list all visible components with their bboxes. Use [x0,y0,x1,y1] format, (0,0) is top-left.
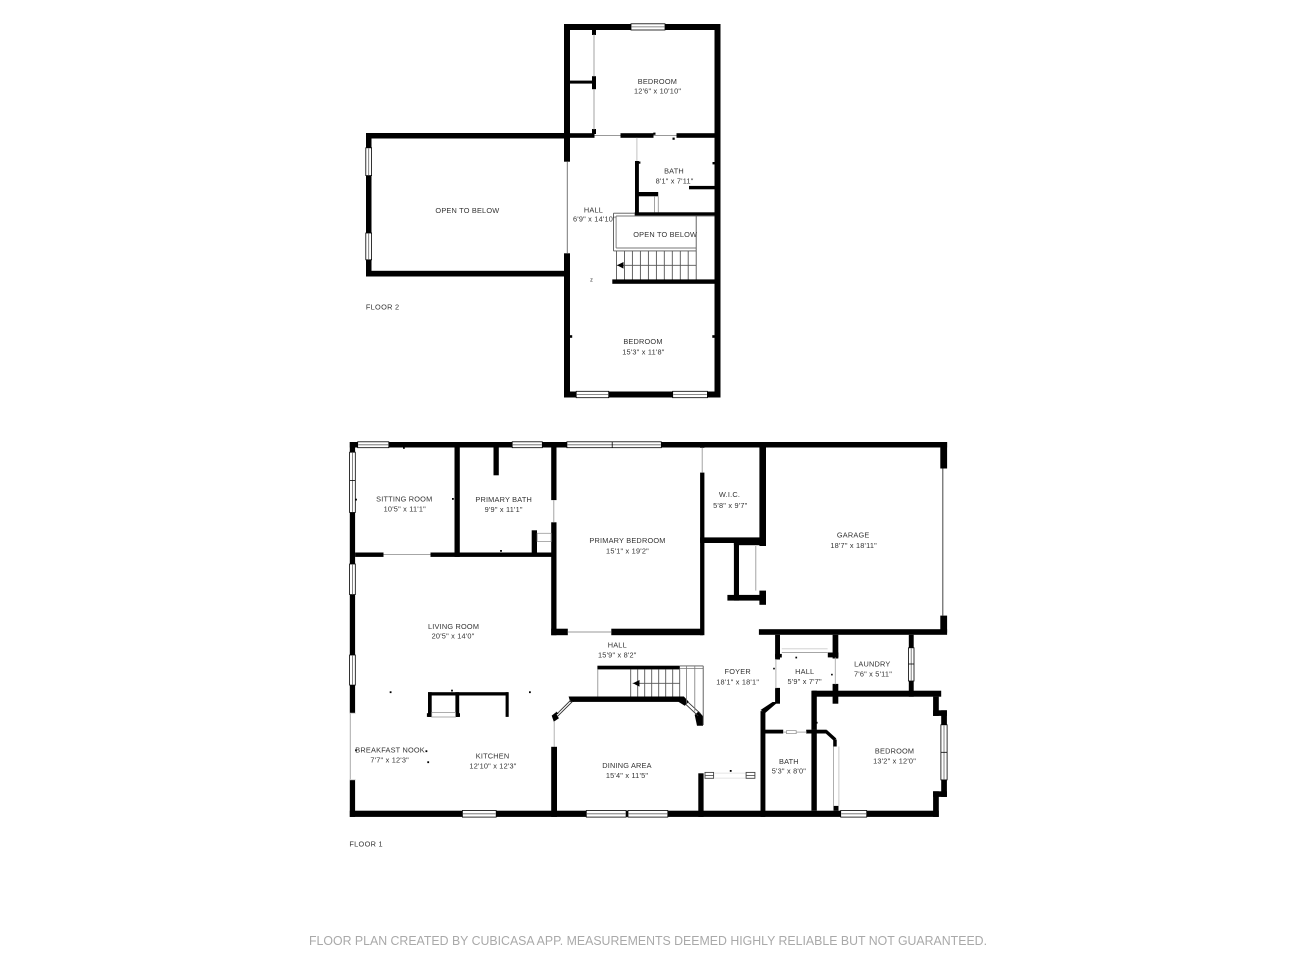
svg-text:PRIMARY BATH: PRIMARY BATH [475,495,532,504]
svg-text:BATH: BATH [779,757,799,766]
svg-text:FOYER: FOYER [725,667,751,676]
svg-text:20'5" x 14'0": 20'5" x 14'0" [432,632,475,641]
svg-text:6'9" x 14'10": 6'9" x 14'10" [573,215,616,224]
svg-text:5'3" x 8'0": 5'3" x 8'0" [772,766,807,775]
svg-text:OPEN TO BELOW: OPEN TO BELOW [435,206,499,215]
svg-text:13'2" x 12'0": 13'2" x 12'0" [873,757,916,766]
svg-text:12'6" x 10'10": 12'6" x 10'10" [634,87,681,96]
svg-text:BATH: BATH [664,167,684,176]
svg-text:15'9" x 8'2": 15'9" x 8'2" [598,651,637,660]
svg-text:FLOOR 2: FLOOR 2 [366,303,400,312]
svg-text:7'7" x 12'3": 7'7" x 12'3" [370,755,409,764]
svg-text:15'3" x 11'8": 15'3" x 11'8" [622,347,665,356]
svg-text:18'7" x 18'11": 18'7" x 18'11" [830,541,877,550]
svg-text:15'1" x 19'2": 15'1" x 19'2" [606,547,649,556]
svg-text:PRIMARY BEDROOM: PRIMARY BEDROOM [589,536,665,545]
svg-text:12'10" x 12'3": 12'10" x 12'3" [469,762,516,771]
svg-text:9'9" x 11'1": 9'9" x 11'1" [485,505,523,514]
svg-text:BEDROOM: BEDROOM [638,77,677,86]
svg-text:DINING AREA: DINING AREA [602,761,652,770]
svg-text:FLOOR 1: FLOOR 1 [349,840,383,849]
svg-text:7'6" x 5'11": 7'6" x 5'11" [854,670,892,679]
svg-text:HALL: HALL [608,640,627,649]
svg-text:GARAGE: GARAGE [837,531,870,540]
svg-text:BEDROOM: BEDROOM [623,337,662,346]
svg-text:SITTING ROOM: SITTING ROOM [376,494,432,503]
svg-text:FLOOR PLAN CREATED BY CUBICASA: FLOOR PLAN CREATED BY CUBICASA APP. MEAS… [309,933,987,948]
svg-text:KITCHEN: KITCHEN [476,752,510,761]
svg-text:z: z [590,278,593,284]
svg-text:HALL: HALL [584,205,603,214]
svg-text:BEDROOM: BEDROOM [875,747,914,756]
svg-text:HALL: HALL [795,667,814,676]
svg-text:5'9" x 7'7": 5'9" x 7'7" [788,677,823,686]
svg-text:LIVING ROOM: LIVING ROOM [428,622,479,631]
svg-text:OPEN TO BELOW: OPEN TO BELOW [633,230,697,239]
svg-text:W.I.C.: W.I.C. [719,490,740,499]
svg-text:10'5" x 11'1": 10'5" x 11'1" [384,504,427,513]
svg-text:LAUNDRY: LAUNDRY [854,660,890,669]
svg-text:18'1" x 18'1": 18'1" x 18'1" [716,678,759,687]
svg-text:8'1" x 7'11": 8'1" x 7'11" [656,177,694,186]
svg-text:5'8" x 9'7": 5'8" x 9'7" [713,501,748,510]
svg-text:15'4" x 11'5": 15'4" x 11'5" [606,771,649,780]
svg-text:BREAKFAST NOOK: BREAKFAST NOOK [355,745,425,754]
